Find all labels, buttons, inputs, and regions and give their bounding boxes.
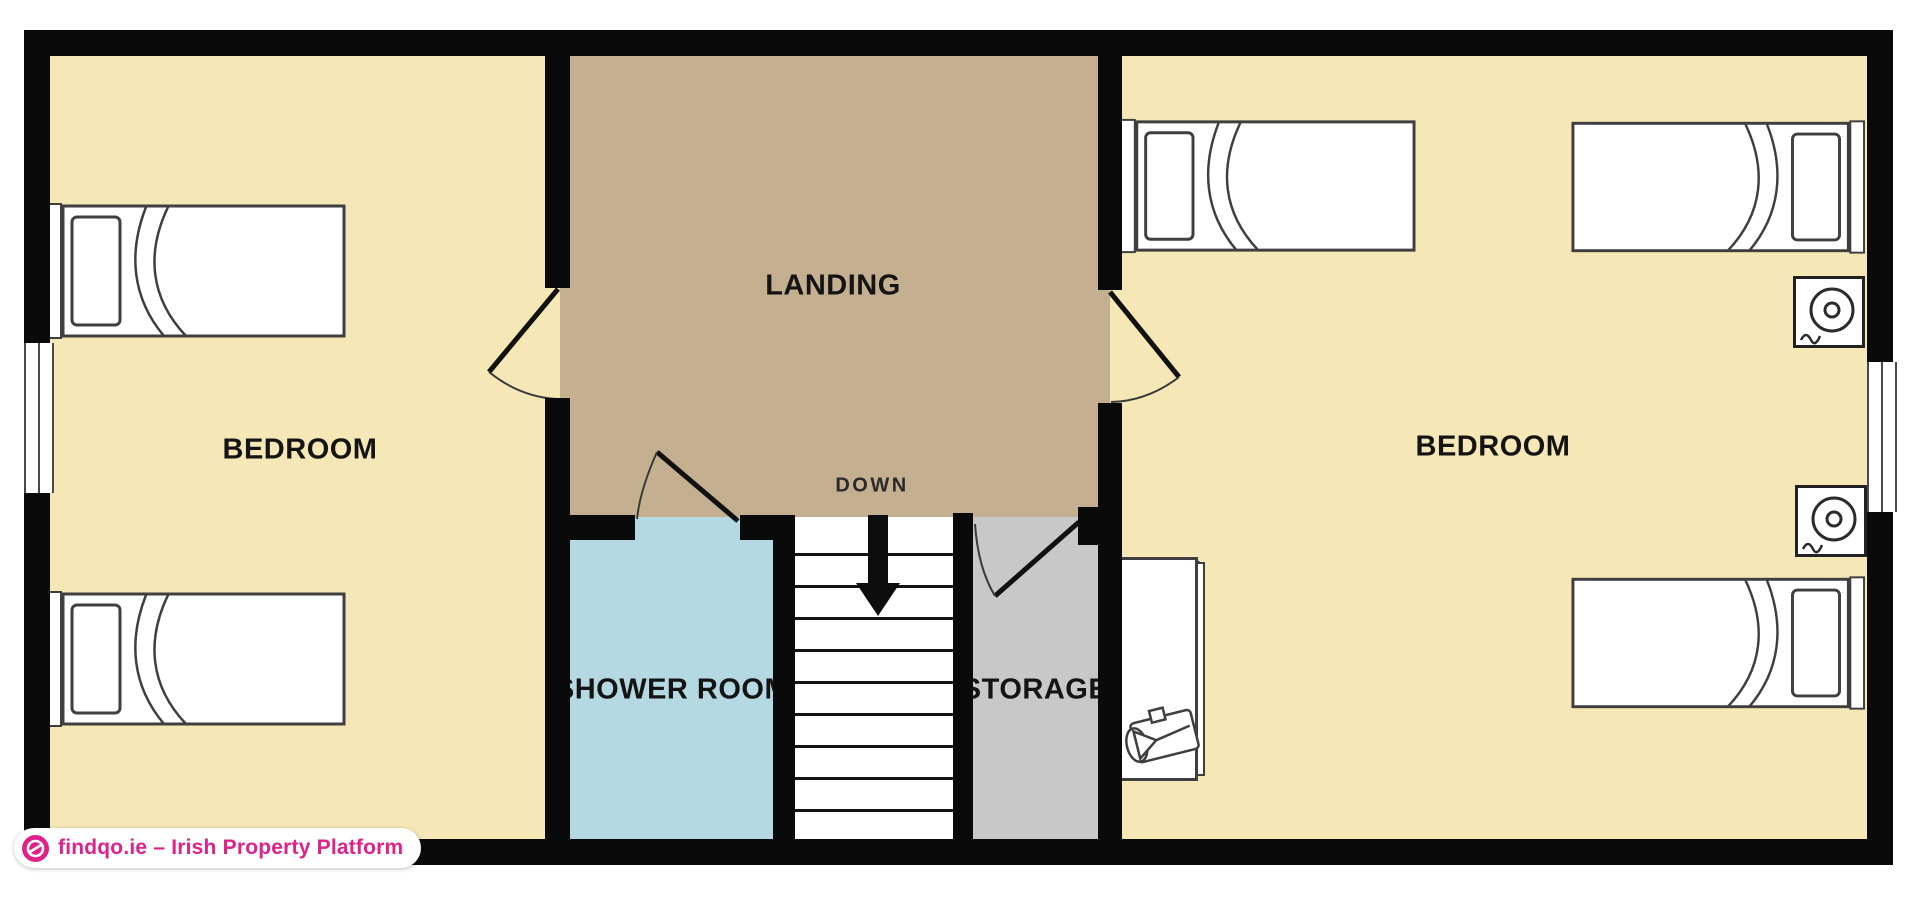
wall-segment [1098, 30, 1122, 290]
wall-segment [1078, 507, 1100, 545]
wall-segment [24, 30, 50, 343]
wall-segment [1098, 403, 1122, 865]
wall-segment [1867, 30, 1893, 362]
wall-segment [773, 515, 795, 865]
wall-segment [24, 30, 1893, 56]
stair-tread [795, 777, 953, 780]
bed [46, 591, 346, 727]
wall-segment [1867, 512, 1893, 865]
appliance-icon [1795, 485, 1867, 557]
bed [1571, 576, 1865, 710]
bed [46, 203, 346, 339]
wall-segment [545, 515, 635, 540]
wall-segment [24, 493, 50, 865]
stair-tread [795, 681, 953, 684]
label-right-bedroom: BEDROOM [1416, 431, 1571, 464]
window-left-wall [24, 343, 54, 493]
wall-segment [953, 513, 973, 865]
stair-tread [795, 617, 953, 620]
stair-tread [795, 745, 953, 748]
label-landing: LANDING [765, 270, 901, 303]
bed [1571, 120, 1865, 254]
stair-down-arrow-icon [868, 515, 888, 585]
window-right-wall [1867, 362, 1897, 512]
brand-text: findqo.ie – Irish Property Platform [58, 836, 403, 860]
appliance-icon [1793, 276, 1865, 348]
stair-tread [795, 649, 953, 652]
brand-globe-icon [22, 835, 49, 862]
wall-segment [545, 398, 570, 865]
stair-down-arrowhead-icon [856, 583, 900, 616]
chair [1122, 698, 1208, 778]
label-left-bedroom: BEDROOM [223, 434, 378, 467]
label-storage: STORAGE [962, 674, 1108, 707]
stair-tread [795, 713, 953, 716]
stair-tread [795, 809, 953, 812]
bed [1120, 118, 1416, 254]
wall-segment [545, 30, 570, 288]
brand-badge[interactable]: findqo.ie – Irish Property Platform [14, 828, 421, 868]
label-stairs-down: DOWN [835, 475, 908, 498]
floor-plan: BEDROOM BEDROOM LANDING SHOWER ROOM STOR… [0, 0, 1920, 897]
label-shower-room: SHOWER ROOM [555, 674, 789, 707]
